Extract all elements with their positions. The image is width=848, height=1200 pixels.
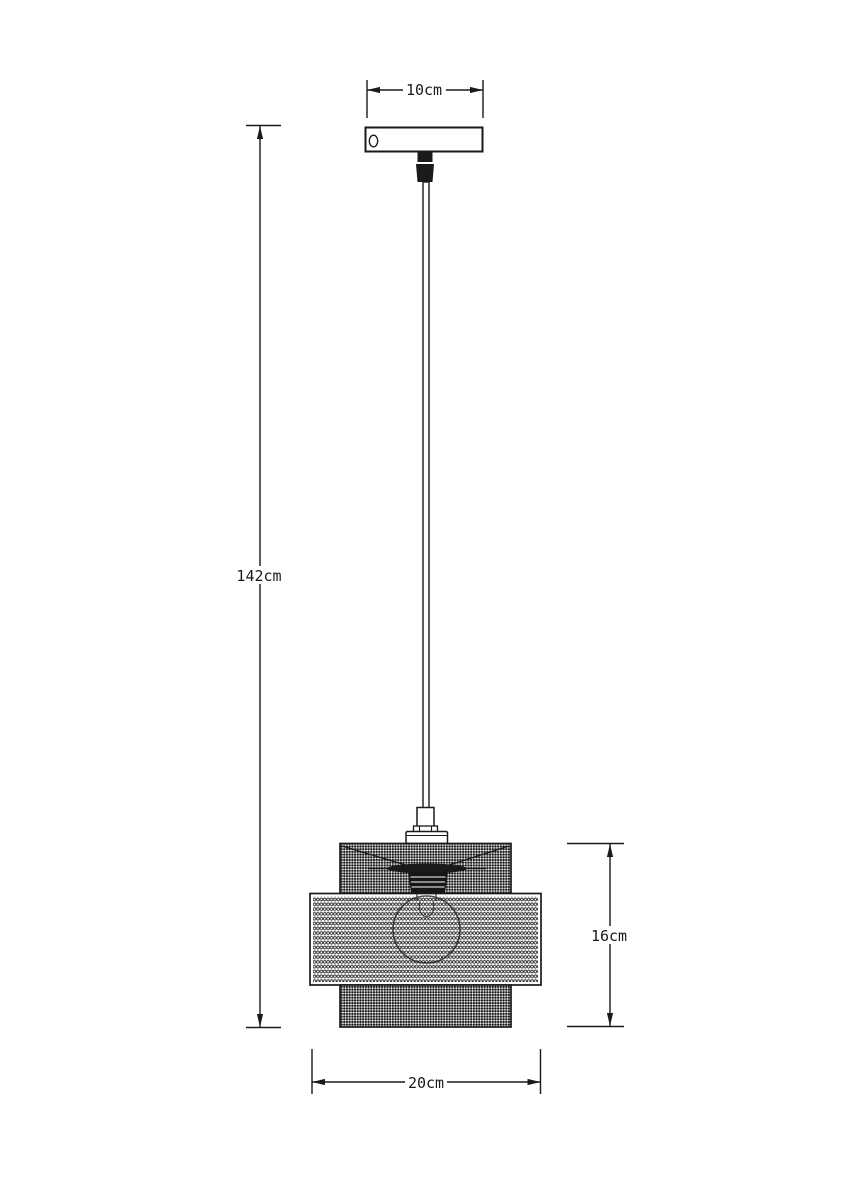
dimension-label-plate-width: 10cm bbox=[406, 81, 442, 99]
arrow-down-icon bbox=[257, 1014, 263, 1027]
cord-grip-upper bbox=[418, 152, 433, 163]
shade-middle-band bbox=[310, 894, 541, 986]
cord-grip bbox=[416, 152, 434, 183]
arrow-left-icon bbox=[367, 87, 380, 93]
canopy-body bbox=[406, 832, 448, 844]
arrow-left-icon bbox=[312, 1079, 325, 1085]
arrow-right-icon bbox=[528, 1079, 541, 1085]
drawing-canvas: 10cm 142cm 16cm 20cm bbox=[0, 0, 848, 1200]
dimension-label-shade-height: 16cm bbox=[591, 927, 627, 945]
arrow-up-icon bbox=[257, 126, 263, 139]
dimension-label-shade-width: 20cm bbox=[408, 1074, 444, 1092]
dimension-10cm: 10cm bbox=[367, 80, 483, 118]
shade-top-tier bbox=[340, 844, 511, 894]
dimension-16cm: 16cm bbox=[567, 844, 629, 1027]
dimension-label-overall-height: 142cm bbox=[236, 567, 281, 585]
suspension-cable bbox=[423, 182, 429, 808]
lamp-holder bbox=[414, 808, 438, 833]
arrow-up-icon bbox=[607, 844, 613, 857]
shade-bottom-tier bbox=[340, 985, 511, 1027]
dimension-142cm: 142cm bbox=[235, 126, 283, 1028]
ceiling-plate-body bbox=[366, 128, 483, 152]
canopy bbox=[406, 832, 448, 844]
cord-grip-lower bbox=[416, 164, 434, 182]
dimension-20cm: 20cm bbox=[312, 1049, 541, 1094]
arrow-right-icon bbox=[470, 87, 483, 93]
holder-barrel bbox=[417, 808, 434, 828]
lamp-technical-drawing: 10cm 142cm 16cm 20cm bbox=[0, 0, 848, 1200]
ceiling-plate bbox=[366, 128, 483, 152]
arrow-down-icon bbox=[607, 1013, 613, 1026]
middle-band-mesh bbox=[313, 897, 538, 983]
